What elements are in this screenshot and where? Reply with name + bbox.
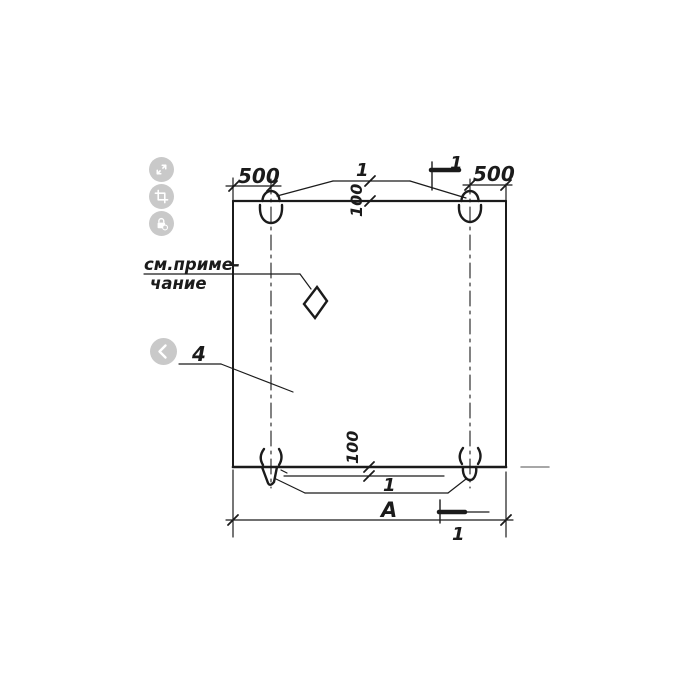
loop-recess-left bbox=[261, 449, 264, 465]
loop-recess-left bbox=[460, 448, 463, 464]
section-label-top-1: 1 bbox=[450, 153, 463, 174]
callout-bottom-loops bbox=[276, 479, 466, 493]
note-text-line1: см.приме- bbox=[144, 255, 240, 274]
expand-button[interactable] bbox=[149, 157, 174, 182]
chevron-left-icon bbox=[150, 338, 177, 365]
leader-line bbox=[300, 274, 311, 289]
item-4-callout bbox=[179, 364, 293, 392]
lifting-loops bbox=[260, 191, 481, 485]
dim-label-500-left: 500 bbox=[238, 164, 280, 188]
previous-button[interactable] bbox=[150, 338, 177, 365]
loop-centerlines bbox=[271, 179, 470, 488]
lock-button[interactable] bbox=[149, 211, 174, 236]
leader-line bbox=[277, 181, 333, 196]
dim-label-500-right: 500 bbox=[473, 162, 515, 186]
crop-icon bbox=[154, 189, 169, 204]
leader-line bbox=[410, 181, 466, 198]
dim-bottom-100 bbox=[284, 462, 444, 481]
lock-icon bbox=[154, 216, 169, 231]
diamond-marker bbox=[304, 287, 327, 318]
panel-outline bbox=[233, 201, 549, 467]
section-label-bottom-1: 1 bbox=[452, 524, 465, 545]
dim-label-A: А bbox=[379, 498, 397, 522]
dim-label-100-bottom: 100 bbox=[343, 431, 362, 464]
note-text-line2: чание bbox=[150, 274, 207, 293]
expand-icon bbox=[154, 162, 169, 177]
dim-label-100-top: 100 bbox=[347, 184, 366, 217]
technical-drawing: 500 500 100 100 1 1 1 1 А 4 см.приме- ча… bbox=[0, 0, 700, 700]
loop-recess-right bbox=[478, 448, 481, 464]
viewer-toolbar bbox=[149, 157, 174, 236]
crop-button[interactable] bbox=[149, 184, 174, 209]
leader-line bbox=[448, 479, 466, 493]
loop-recess-right bbox=[279, 449, 282, 465]
loop-tick bbox=[281, 470, 287, 473]
callout-label-bottom-1: 1 bbox=[383, 475, 396, 496]
callout-top-loops bbox=[277, 181, 466, 198]
callout-label-top-1: 1 bbox=[356, 160, 369, 181]
loop-body bbox=[262, 467, 277, 485]
item-label-4: 4 bbox=[191, 342, 206, 366]
leader-line bbox=[276, 479, 305, 493]
leader-line bbox=[221, 364, 293, 392]
drawing-viewer: 500 500 100 100 1 1 1 1 А 4 см.приме- ча… bbox=[0, 0, 700, 700]
